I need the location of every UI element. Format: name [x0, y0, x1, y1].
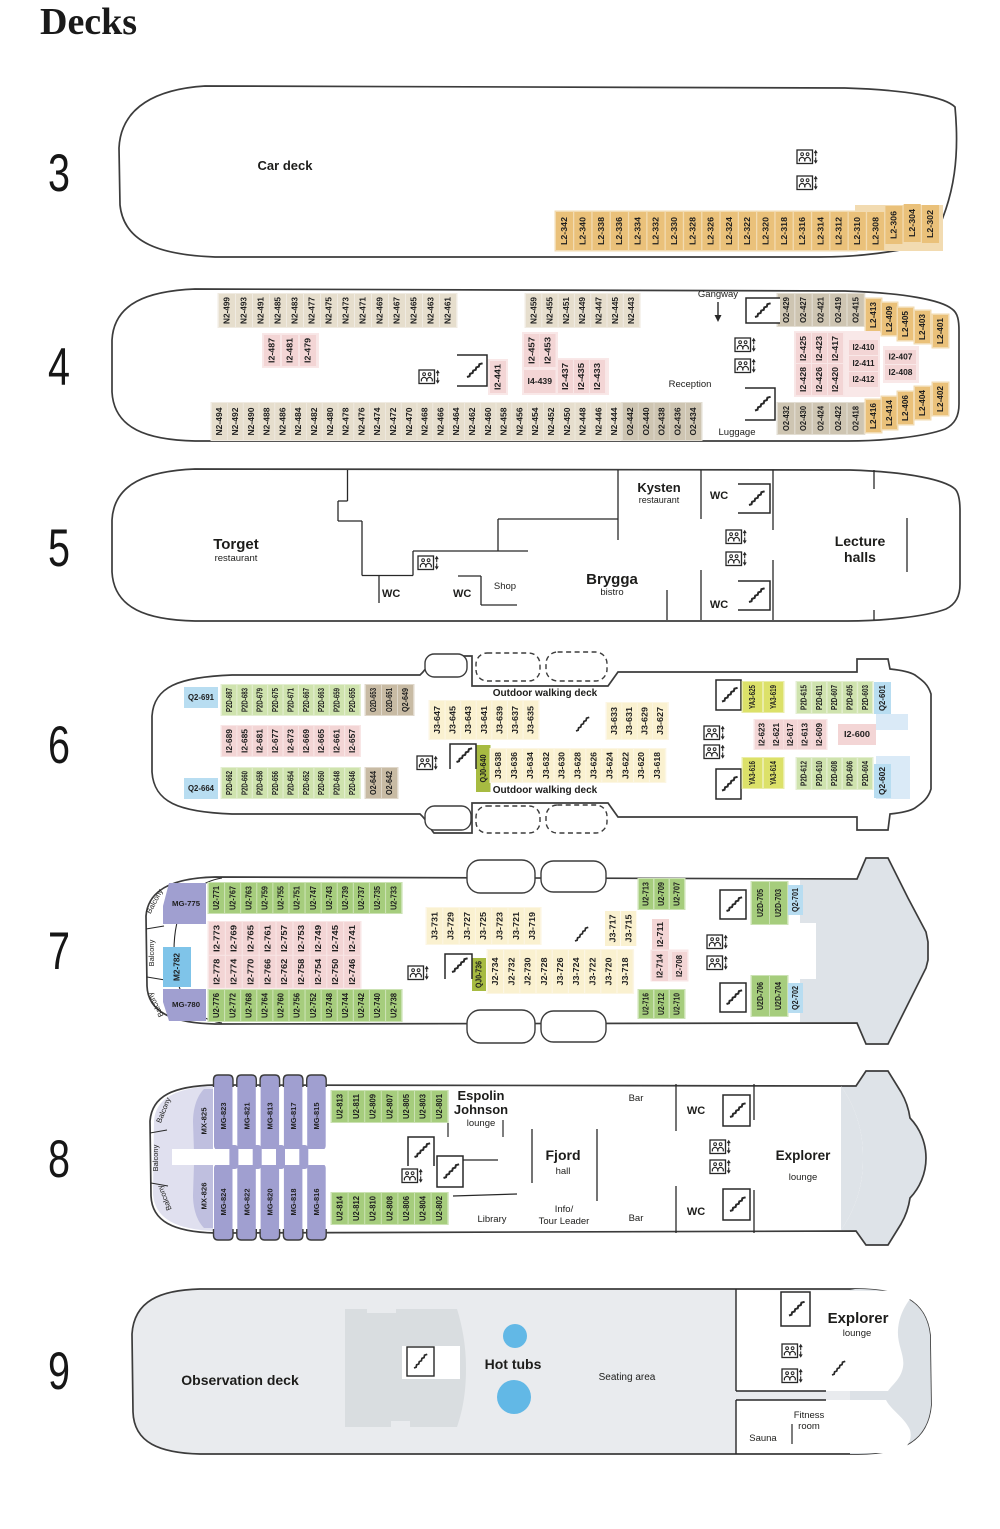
svg-text:U2-763: U2-763 — [244, 885, 253, 910]
svg-text:N2-473: N2-473 — [342, 296, 351, 324]
svg-text:U2-707: U2-707 — [673, 882, 682, 906]
svg-text:I2-778: I2-778 — [213, 958, 222, 985]
svg-text:U2-809: U2-809 — [369, 1093, 378, 1119]
svg-text:I2-423: I2-423 — [815, 335, 824, 361]
svg-text:U2-810: U2-810 — [369, 1195, 378, 1221]
svg-text:U2-760: U2-760 — [277, 992, 286, 1018]
svg-text:I2-761: I2-761 — [263, 924, 272, 952]
svg-text:N2-480: N2-480 — [326, 407, 335, 436]
svg-text:N2-462: N2-462 — [468, 407, 477, 436]
svg-text:Q2-649: Q2-649 — [401, 687, 410, 712]
svg-text:lounge: lounge — [843, 1328, 872, 1339]
svg-text:P2D-610: P2D-610 — [815, 760, 824, 786]
svg-text:J3-629: J3-629 — [641, 706, 650, 735]
svg-text:Explorer: Explorer — [776, 1148, 832, 1163]
svg-text:U2D-705: U2D-705 — [756, 888, 765, 917]
svg-text:N2-490: N2-490 — [247, 407, 256, 436]
svg-text:N2-471: N2-471 — [359, 296, 368, 324]
svg-text:P2D-683: P2D-683 — [240, 687, 249, 712]
svg-text:6: 6 — [48, 716, 70, 775]
svg-text:MG-820: MG-820 — [266, 1189, 275, 1216]
svg-text:Fjord: Fjord — [546, 1147, 581, 1163]
svg-text:MG-775: MG-775 — [172, 899, 200, 908]
svg-text:YA3-614: YA3-614 — [769, 760, 778, 785]
svg-text:N2-494: N2-494 — [215, 407, 224, 436]
svg-text:U2-712: U2-712 — [657, 992, 666, 1015]
svg-text:Q2-702: Q2-702 — [791, 985, 800, 1010]
svg-text:N2-455: N2-455 — [546, 296, 555, 324]
svg-text:I2-407: I2-407 — [889, 353, 913, 362]
svg-text:J3-715: J3-715 — [624, 914, 633, 943]
svg-text:Explorer: Explorer — [828, 1310, 889, 1327]
svg-text:U2-710: U2-710 — [673, 992, 682, 1015]
svg-text:I2-457: I2-457 — [528, 337, 537, 364]
svg-text:I2-420: I2-420 — [831, 366, 840, 392]
svg-text:L2-314: L2-314 — [816, 216, 825, 245]
svg-text:L2-338: L2-338 — [597, 216, 606, 245]
svg-text:P2D-679: P2D-679 — [256, 687, 265, 712]
svg-text:N2-472: N2-472 — [389, 407, 398, 436]
svg-text:I2-746: I2-746 — [348, 958, 357, 985]
svg-text:U2-740: U2-740 — [373, 992, 382, 1018]
svg-text:U2-747: U2-747 — [309, 886, 318, 910]
svg-text:O2-642: O2-642 — [385, 770, 394, 795]
svg-text:J3-620: J3-620 — [637, 751, 646, 779]
svg-text:U2-759: U2-759 — [261, 885, 270, 910]
svg-text:N2-499: N2-499 — [223, 296, 232, 324]
svg-text:O2-438: O2-438 — [658, 407, 667, 436]
svg-text:Fitness: Fitness — [794, 1410, 825, 1421]
svg-text:N2-451: N2-451 — [562, 296, 571, 324]
svg-text:P2D-667: P2D-667 — [302, 688, 311, 712]
svg-text:U2-756: U2-756 — [293, 992, 302, 1018]
svg-text:I2-669: I2-669 — [302, 728, 311, 753]
svg-text:J3-631: J3-631 — [625, 706, 634, 735]
svg-text:U2-743: U2-743 — [325, 885, 334, 910]
svg-text:I2-661: I2-661 — [333, 728, 342, 753]
svg-text:I2-711: I2-711 — [656, 921, 665, 947]
svg-text:L2-324: L2-324 — [725, 216, 734, 245]
svg-text:MG-818: MG-818 — [289, 1189, 298, 1216]
svg-text:O2D-653: O2D-653 — [369, 687, 378, 712]
svg-text:N2-470: N2-470 — [405, 407, 414, 436]
svg-text:J3-726: J3-726 — [556, 957, 565, 986]
svg-text:I2-741: I2-741 — [348, 924, 357, 952]
svg-text:U2-751: U2-751 — [293, 885, 302, 910]
svg-text:U2-733: U2-733 — [389, 885, 398, 910]
svg-text:P2D-606: P2D-606 — [846, 760, 855, 786]
svg-text:Shop: Shop — [494, 581, 516, 592]
svg-text:N2-478: N2-478 — [342, 407, 351, 436]
svg-text:I2-749: I2-749 — [314, 924, 323, 952]
svg-text:I2-745: I2-745 — [331, 924, 340, 952]
svg-text:I2-617: I2-617 — [786, 723, 795, 746]
svg-text:I2-762: I2-762 — [280, 958, 289, 985]
svg-text:J3-637: J3-637 — [511, 706, 520, 734]
svg-text:7: 7 — [48, 922, 70, 981]
svg-text:U2-771: U2-771 — [212, 885, 221, 910]
svg-text:lounge: lounge — [789, 1172, 818, 1183]
svg-text:Info/: Info/ — [555, 1204, 574, 1215]
svg-text:O2-418: O2-418 — [851, 405, 860, 431]
svg-text:I2-487: I2-487 — [268, 338, 277, 363]
svg-text:Q2-601: Q2-601 — [878, 684, 887, 711]
svg-text:3: 3 — [48, 144, 70, 203]
svg-text:Lecture: Lecture — [835, 533, 886, 549]
svg-text:O2-432: O2-432 — [782, 405, 791, 431]
svg-text:I2-435: I2-435 — [577, 362, 586, 390]
svg-text:U2-812: U2-812 — [352, 1195, 361, 1221]
svg-text:J3-633: J3-633 — [610, 706, 619, 735]
svg-text:I2-753: I2-753 — [297, 924, 306, 952]
svg-text:I2-425: I2-425 — [799, 335, 808, 361]
svg-text:QJ0-736: QJ0-736 — [475, 960, 484, 988]
svg-text:J3-723: J3-723 — [496, 911, 505, 940]
svg-text:I2-757: I2-757 — [280, 925, 289, 952]
svg-text:MX-825: MX-825 — [200, 1108, 209, 1135]
svg-text:L2-403: L2-403 — [918, 313, 927, 340]
svg-text:N2-465: N2-465 — [410, 296, 419, 324]
svg-text:I2-774: I2-774 — [230, 958, 239, 985]
svg-text:N2-444: N2-444 — [610, 407, 619, 436]
svg-text:O2-442: O2-442 — [626, 407, 635, 436]
svg-text:L2-416: L2-416 — [869, 402, 878, 429]
svg-text:I2-433: I2-433 — [593, 362, 602, 390]
svg-text:U2D-704: U2D-704 — [774, 981, 783, 1010]
svg-text:Car deck: Car deck — [258, 158, 314, 173]
svg-text:U2-764: U2-764 — [261, 992, 270, 1018]
svg-text:J3-632: J3-632 — [542, 751, 551, 779]
svg-text:U2-811: U2-811 — [352, 1093, 361, 1119]
svg-text:N2-450: N2-450 — [563, 407, 572, 436]
svg-text:N2-446: N2-446 — [594, 407, 603, 436]
svg-text:O2-421: O2-421 — [817, 296, 826, 323]
svg-text:N2-482: N2-482 — [310, 407, 319, 436]
svg-text:O2-429: O2-429 — [782, 296, 791, 323]
svg-text:J3-727: J3-727 — [463, 912, 472, 940]
svg-text:QJ0-640: QJ0-640 — [479, 754, 488, 783]
svg-text:U2-744: U2-744 — [341, 992, 350, 1018]
svg-text:MX-826: MX-826 — [200, 1183, 209, 1210]
svg-text:I2-613: I2-613 — [801, 722, 810, 746]
svg-text:N2-449: N2-449 — [578, 296, 587, 324]
svg-text:N2-464: N2-464 — [452, 407, 461, 436]
svg-text:P2D-663: P2D-663 — [317, 687, 326, 712]
svg-text:Bar: Bar — [629, 1093, 644, 1104]
svg-text:P2D-659: P2D-659 — [333, 687, 342, 712]
svg-text:U2-737: U2-737 — [357, 886, 366, 910]
svg-text:U2-772: U2-772 — [228, 992, 237, 1018]
svg-text:L2-308: L2-308 — [871, 216, 880, 245]
svg-text:L2-320: L2-320 — [762, 216, 771, 245]
svg-text:I2-412: I2-412 — [853, 375, 876, 384]
svg-text:P2D-650: P2D-650 — [317, 770, 326, 795]
svg-text:L2-404: L2-404 — [918, 389, 927, 416]
svg-text:U2-748: U2-748 — [325, 992, 334, 1018]
svg-text:U2D-706: U2D-706 — [756, 981, 765, 1010]
svg-text:Outdoor walking deck: Outdoor walking deck — [493, 785, 598, 796]
svg-text:U2-814: U2-814 — [336, 1195, 345, 1221]
svg-text:restaurant: restaurant — [639, 495, 680, 505]
svg-text:J2-734: J2-734 — [491, 957, 500, 986]
svg-text:J3-628: J3-628 — [574, 751, 583, 779]
svg-text:N2-486: N2-486 — [278, 407, 287, 436]
svg-text:I2-689: I2-689 — [225, 728, 234, 753]
svg-text:O2-424: O2-424 — [817, 405, 826, 431]
svg-text:Q2-691: Q2-691 — [188, 693, 215, 702]
svg-text:Torget: Torget — [213, 536, 259, 553]
svg-text:L2-332: L2-332 — [652, 216, 661, 245]
svg-text:L2-330: L2-330 — [670, 216, 679, 245]
svg-text:J3-626: J3-626 — [590, 751, 599, 779]
svg-text:J3-721: J3-721 — [512, 911, 521, 940]
svg-text:I2-479: I2-479 — [304, 337, 313, 363]
svg-text:L2-336: L2-336 — [615, 216, 624, 245]
svg-text:MG-813: MG-813 — [266, 1103, 275, 1130]
svg-text:U2-808: U2-808 — [385, 1195, 394, 1221]
svg-text:P2D-648: P2D-648 — [333, 770, 342, 795]
svg-text:WC: WC — [710, 490, 728, 502]
svg-text:WC: WC — [382, 588, 400, 600]
svg-text:MG-821: MG-821 — [242, 1103, 251, 1130]
svg-text:O2-419: O2-419 — [834, 296, 843, 323]
svg-text:P2D-652: P2D-652 — [302, 770, 311, 795]
svg-text:P2D-607: P2D-607 — [830, 685, 839, 710]
svg-text:U2-807: U2-807 — [385, 1094, 394, 1119]
svg-text:P2D-605: P2D-605 — [846, 684, 855, 710]
svg-text:I2-657: I2-657 — [348, 729, 357, 753]
svg-text:P2D-662: P2D-662 — [225, 770, 234, 795]
svg-text:I2-437: I2-437 — [561, 363, 570, 390]
svg-text:N2-443: N2-443 — [627, 296, 636, 324]
svg-text:WC: WC — [687, 1105, 705, 1117]
svg-text:P2D-656: P2D-656 — [271, 770, 280, 795]
svg-text:L2-334: L2-334 — [633, 216, 642, 245]
svg-text:J3-630: J3-630 — [558, 751, 567, 779]
svg-text:N2-460: N2-460 — [484, 407, 493, 436]
svg-text:N2-474: N2-474 — [373, 407, 382, 436]
svg-text:O2-434: O2-434 — [689, 407, 698, 436]
svg-text:I2-441: I2-441 — [494, 363, 503, 390]
svg-text:U2-735: U2-735 — [373, 885, 382, 910]
svg-text:hall: hall — [556, 1166, 571, 1177]
svg-text:M2-782: M2-782 — [173, 952, 182, 981]
svg-text:P2D-671: P2D-671 — [287, 687, 296, 712]
svg-text:N2-466: N2-466 — [436, 407, 445, 436]
svg-text:N2-475: N2-475 — [325, 296, 334, 324]
svg-text:YA3-619: YA3-619 — [769, 684, 778, 709]
svg-text:J3-639: J3-639 — [495, 705, 504, 734]
svg-text:O2D-651: O2D-651 — [385, 687, 394, 712]
svg-text:P2D-658: P2D-658 — [256, 770, 265, 795]
svg-text:L2-326: L2-326 — [707, 216, 716, 245]
svg-text:I2-623: I2-623 — [758, 722, 767, 746]
svg-text:P2D-615: P2D-615 — [800, 684, 809, 710]
svg-text:U2-813: U2-813 — [336, 1093, 345, 1119]
svg-text:MG-817: MG-817 — [289, 1103, 298, 1130]
svg-text:I2-750: I2-750 — [331, 958, 340, 985]
svg-text:Balcony: Balcony — [151, 1144, 160, 1171]
svg-text:L2-401: L2-401 — [936, 317, 945, 344]
svg-text:J3-724: J3-724 — [572, 957, 581, 986]
svg-text:I2-758: I2-758 — [297, 958, 306, 985]
svg-text:I2-677: I2-677 — [271, 729, 280, 753]
svg-text:P2D-646: P2D-646 — [348, 770, 357, 795]
svg-text:I2-600: I2-600 — [844, 730, 871, 739]
svg-text:P2D-654: P2D-654 — [287, 770, 296, 795]
svg-text:Library: Library — [477, 1214, 506, 1225]
svg-text:Sauna: Sauna — [749, 1433, 777, 1444]
svg-text:I2-708: I2-708 — [675, 954, 684, 977]
svg-text:I2-411: I2-411 — [853, 359, 876, 368]
svg-text:O2-644: O2-644 — [369, 770, 378, 795]
svg-text:4: 4 — [48, 338, 70, 397]
svg-text:N2-491: N2-491 — [257, 296, 266, 324]
svg-text:N2-488: N2-488 — [263, 407, 272, 436]
svg-text:J3-731: J3-731 — [430, 911, 439, 940]
svg-text:MG-824: MG-824 — [219, 1188, 228, 1216]
svg-text:I2-408: I2-408 — [889, 368, 914, 377]
svg-text:J3-718: J3-718 — [621, 957, 630, 986]
svg-text:I2-481: I2-481 — [286, 337, 295, 363]
svg-text:Johnson: Johnson — [454, 1102, 508, 1117]
svg-text:J3-638: J3-638 — [494, 751, 503, 779]
svg-text:L2-405: L2-405 — [901, 310, 910, 337]
svg-text:MG-815: MG-815 — [312, 1103, 321, 1130]
svg-text:Q2-664: Q2-664 — [188, 784, 215, 793]
svg-text:MG-780: MG-780 — [172, 1000, 200, 1009]
svg-text:L2-310: L2-310 — [853, 216, 862, 245]
svg-text:5: 5 — [48, 519, 70, 578]
svg-text:U2-709: U2-709 — [657, 881, 666, 906]
svg-text:N2-459: N2-459 — [529, 296, 538, 324]
svg-text:U2-804: U2-804 — [419, 1195, 428, 1221]
svg-text:Decks: Decks — [40, 1, 137, 43]
svg-text:J3-725: J3-725 — [479, 911, 488, 940]
svg-text:U2-742: U2-742 — [357, 992, 366, 1018]
svg-text:Brygga: Brygga — [586, 571, 638, 588]
svg-text:N2-492: N2-492 — [231, 407, 240, 436]
svg-text:J3-729: J3-729 — [447, 911, 456, 940]
svg-text:WC: WC — [687, 1206, 705, 1218]
svg-text:I4-439: I4-439 — [528, 377, 553, 386]
svg-text:L2-322: L2-322 — [743, 216, 752, 245]
svg-text:I2-714: I2-714 — [656, 953, 665, 978]
svg-text:P2D-655: P2D-655 — [348, 687, 357, 712]
svg-text:Q2-701: Q2-701 — [791, 887, 800, 912]
svg-text:I2-765: I2-765 — [246, 924, 255, 952]
svg-text:Gangway: Gangway — [698, 289, 738, 300]
svg-text:N2-467: N2-467 — [393, 297, 402, 324]
svg-text:L2-304: L2-304 — [908, 208, 917, 237]
svg-text:Balcony: Balcony — [147, 939, 156, 966]
svg-text:O2-440: O2-440 — [642, 407, 651, 436]
svg-text:N2-493: N2-493 — [240, 296, 249, 324]
svg-text:Tour Leader: Tour Leader — [539, 1216, 590, 1227]
svg-text:O2-427: O2-427 — [799, 297, 808, 323]
svg-text:N2-456: N2-456 — [515, 407, 524, 436]
svg-text:U2-713: U2-713 — [642, 881, 651, 906]
svg-text:U2-739: U2-739 — [341, 885, 350, 910]
svg-text:L2-316: L2-316 — [798, 216, 807, 245]
svg-text:I2-417: I2-417 — [831, 336, 840, 361]
svg-text:Bar: Bar — [629, 1213, 644, 1224]
svg-text:J3-722: J3-722 — [588, 957, 597, 986]
svg-text:N2-447: N2-447 — [595, 297, 604, 324]
svg-text:L2-302: L2-302 — [926, 209, 935, 238]
svg-text:J3-622: J3-622 — [621, 751, 630, 779]
svg-text:Hot tubs: Hot tubs — [485, 1356, 542, 1372]
svg-text:Espolin: Espolin — [458, 1088, 505, 1103]
svg-text:J3-636: J3-636 — [510, 751, 519, 779]
svg-text:L2-312: L2-312 — [835, 216, 844, 245]
svg-text:I2-428: I2-428 — [799, 366, 808, 392]
svg-text:J3-641: J3-641 — [480, 705, 489, 734]
svg-text:I2-453: I2-453 — [544, 336, 553, 364]
svg-text:P2D-603: P2D-603 — [861, 684, 870, 710]
svg-text:L2-342: L2-342 — [560, 216, 569, 245]
svg-text:L2-409: L2-409 — [885, 305, 894, 332]
svg-text:N2-454: N2-454 — [531, 407, 540, 436]
svg-text:O2-430: O2-430 — [799, 405, 808, 431]
svg-text:N2-448: N2-448 — [579, 407, 588, 436]
svg-text:J2-730: J2-730 — [524, 957, 533, 986]
svg-text:U2-767: U2-767 — [228, 886, 237, 910]
svg-text:J3-634: J3-634 — [526, 751, 535, 779]
svg-text:N2-485: N2-485 — [274, 296, 283, 324]
svg-text:P2D-612: P2D-612 — [800, 760, 809, 786]
svg-text:WC: WC — [453, 588, 471, 600]
svg-text:J3-635: J3-635 — [527, 705, 536, 734]
svg-text:U2-806: U2-806 — [402, 1195, 411, 1221]
svg-text:L2-328: L2-328 — [688, 216, 697, 245]
svg-text:I2-673: I2-673 — [287, 728, 296, 753]
svg-text:P2D-608: P2D-608 — [830, 760, 839, 786]
svg-text:J3-717: J3-717 — [608, 915, 617, 943]
svg-text:L2-406: L2-406 — [901, 394, 910, 421]
svg-text:U2-776: U2-776 — [212, 992, 221, 1018]
svg-text:N2-484: N2-484 — [294, 407, 303, 436]
svg-text:U2-768: U2-768 — [244, 992, 253, 1018]
svg-text:YA3-616: YA3-616 — [748, 760, 757, 785]
svg-text:U2-805: U2-805 — [402, 1093, 411, 1119]
svg-text:8: 8 — [48, 1130, 70, 1189]
svg-text:I2-770: I2-770 — [246, 958, 255, 985]
svg-text:Reception: Reception — [669, 379, 712, 390]
svg-text:I2-769: I2-769 — [230, 924, 239, 952]
svg-text:I2-426: I2-426 — [815, 366, 824, 392]
svg-text:MG-823: MG-823 — [219, 1103, 228, 1130]
svg-text:J2-728: J2-728 — [540, 957, 549, 986]
svg-text:I2-773: I2-773 — [213, 924, 222, 952]
svg-text:bistro: bistro — [600, 587, 623, 598]
svg-text:J3-719: J3-719 — [528, 911, 537, 940]
svg-text:L2-340: L2-340 — [579, 216, 588, 245]
svg-text:Luggage: Luggage — [719, 427, 756, 438]
svg-text:L2-306: L2-306 — [890, 210, 899, 239]
svg-text:J3-627: J3-627 — [656, 707, 665, 735]
svg-text:N2-445: N2-445 — [611, 296, 620, 324]
svg-text:L2-402: L2-402 — [936, 385, 945, 412]
svg-text:restaurant: restaurant — [215, 553, 258, 564]
svg-text:P2D-611: P2D-611 — [815, 684, 824, 710]
svg-text:P2D-660: P2D-660 — [240, 770, 249, 795]
svg-text:I2-681: I2-681 — [256, 728, 265, 753]
svg-text:I2-621: I2-621 — [772, 722, 781, 746]
svg-text:Outdoor walking deck: Outdoor walking deck — [493, 688, 598, 699]
svg-text:J3-624: J3-624 — [605, 751, 614, 779]
svg-text:9: 9 — [48, 1342, 70, 1401]
